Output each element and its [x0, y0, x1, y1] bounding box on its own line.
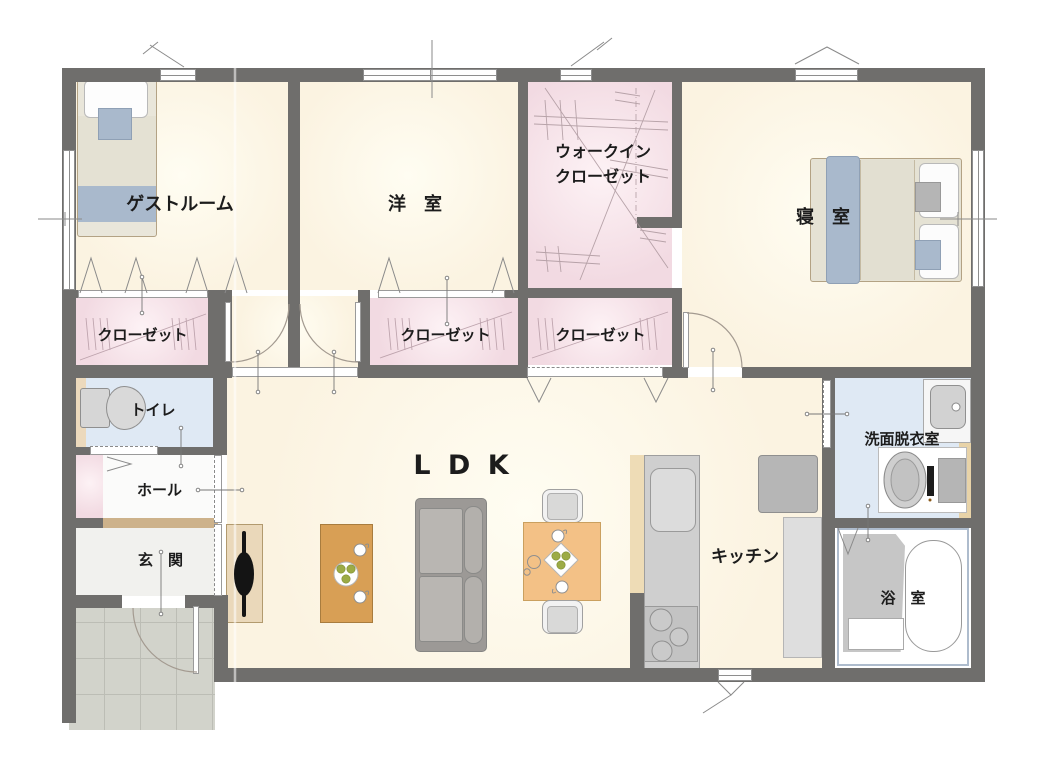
closet-right-label: クローゼット: [538, 325, 663, 345]
closet-left-label: クローゼット: [80, 325, 205, 345]
walk-in-closet-label-line2: クローゼット: [533, 166, 673, 188]
ldk-label: L D K: [403, 448, 523, 484]
corridor-left-door-arc: [231, 304, 289, 362]
stove-burners: [650, 609, 688, 661]
bedroom-label: 寝 室: [768, 206, 878, 230]
bifold-marks: [80, 258, 858, 554]
toilet-label: トイレ: [118, 400, 188, 420]
hall-closet-fold-mark: [107, 457, 131, 471]
hall-label: ホール: [122, 480, 197, 500]
bedroom-door-arc: [687, 313, 742, 368]
kitchen-label: キッチン: [700, 546, 790, 569]
guest-room-label: ゲストルーム: [110, 193, 250, 217]
entrance-door-arc: [133, 608, 197, 672]
washing-machine: [884, 452, 934, 508]
floor-plan: ゲストルーム 洋 室 ウォークイン クローゼット 寝 室 クローゼット クローゼ…: [0, 0, 1050, 780]
window-marks: [38, 38, 997, 713]
washroom-label: 洗面脱衣室: [843, 429, 961, 449]
closet-mid-label: クローゼット: [383, 325, 508, 345]
coffee-table-items: [334, 544, 369, 603]
entrance-label: 玄 関: [118, 550, 203, 570]
tv-icon: [234, 531, 254, 617]
dining-table-items: [524, 530, 578, 593]
vanity-faucet: [952, 403, 960, 411]
linework-overlay: [0, 0, 1050, 780]
walk-in-closet-label-line1: ウォークイン: [533, 141, 673, 163]
bathroom-label: 浴 室: [863, 588, 943, 608]
western-room-label: 洋 室: [350, 193, 480, 217]
corridor-right-door-arc: [300, 304, 358, 362]
